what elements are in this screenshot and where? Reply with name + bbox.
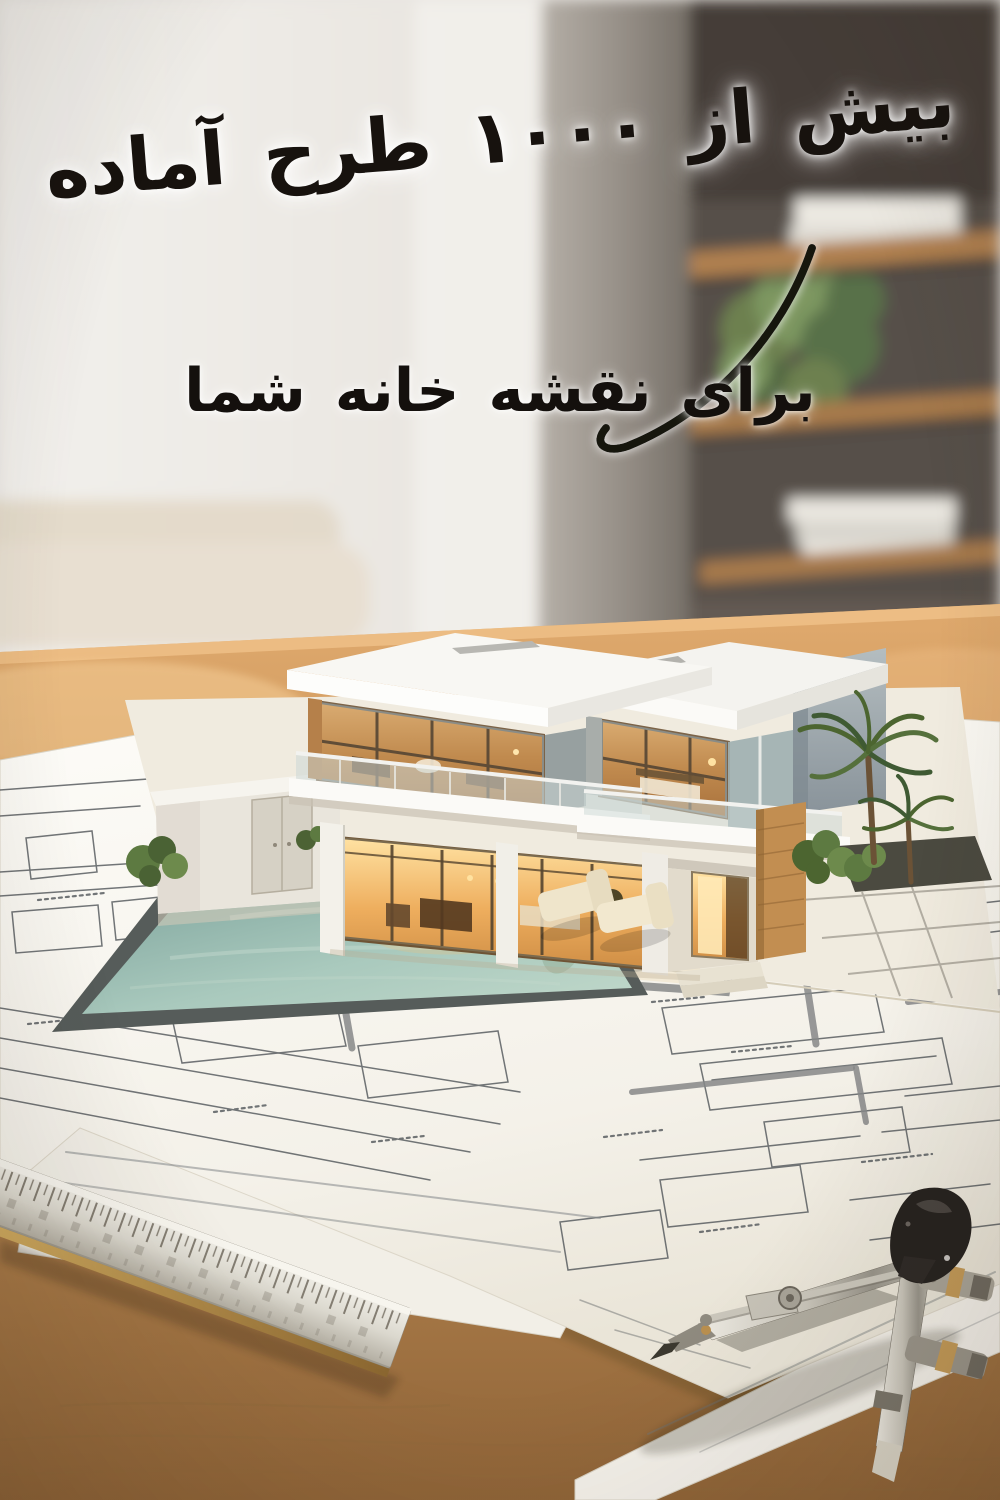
sofa	[0, 500, 370, 648]
column	[496, 842, 518, 968]
wood-pillar	[756, 802, 806, 960]
book-stack	[788, 498, 956, 522]
subheadline-text: برای نقشه خانه شما	[24, 356, 976, 426]
poster-canvas: بیش از ۱۰۰۰ طرح آماده برای نقشه خانه شما	[0, 0, 1000, 1500]
folded-linens	[795, 198, 960, 226]
scene-illustration	[0, 0, 1000, 1500]
column	[320, 822, 344, 956]
